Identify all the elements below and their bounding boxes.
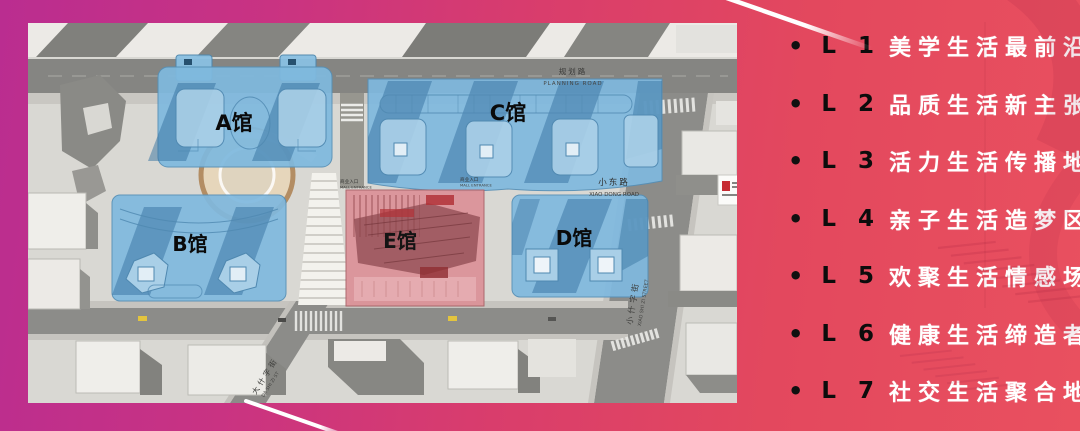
hall-c: C馆: [352, 79, 662, 191]
floor-desc: 美学生活最前沿: [889, 30, 1080, 62]
floor-row-l6: • L 6 健康生活缔造者: [758, 318, 1074, 350]
bullet-icon: •: [788, 207, 803, 231]
hall-b: B馆: [112, 195, 286, 301]
slash-line-bottom: [246, 401, 352, 431]
hall-d-label: D馆: [556, 226, 593, 250]
planning-road-label-cn: 规划路: [559, 66, 588, 76]
floor-desc: 亲子生活造梦区: [889, 203, 1080, 235]
floor-desc: 社交生活聚合地: [889, 375, 1080, 407]
hall-e-label: E馆: [383, 229, 417, 253]
floor-row-l7: • L 7 社交生活聚合地: [758, 375, 1074, 407]
bullet-icon: •: [788, 34, 803, 58]
floor-level: L 7: [821, 378, 881, 404]
floor-row-l5: • L 5 欢聚生活情感场: [758, 260, 1074, 292]
floor-level: L 5: [821, 263, 881, 289]
planning-road-label-en: PLANNING ROAD: [543, 81, 602, 87]
hall-a-label: A馆: [215, 111, 252, 135]
hall-a: A馆: [148, 55, 332, 167]
hall-e: E馆: [346, 190, 484, 306]
xiaodong-road-label-en: XIAO DONG ROAD: [589, 192, 639, 198]
mid-road: [340, 93, 364, 188]
entrance-banner: [718, 175, 737, 205]
north-buildings: [28, 23, 737, 57]
south-road: [28, 301, 628, 340]
bullet-icon: •: [788, 322, 803, 346]
xiaodong-road-label-cn: 小东路: [598, 177, 630, 188]
floor-desc: 欢聚生活情感场: [889, 260, 1080, 292]
floor-guide-list: • L 1 美学生活最前沿 • L 2 品质生活新主张 • L 3 活力生活传播…: [758, 30, 1074, 407]
mall-entrance-left-en: MALL ENTRANCE: [340, 185, 372, 190]
mall-entrance-right-en: MALL ENTRANCE: [460, 183, 492, 188]
bullet-icon: •: [788, 149, 803, 173]
floor-row-l1: • L 1 美学生活最前沿: [758, 30, 1074, 62]
site-plan-svg: A馆 C馆: [28, 23, 737, 403]
floor-desc: 健康生活缔造者: [889, 318, 1080, 350]
floor-desc: 品质生活新主张: [889, 88, 1080, 120]
hall-c-label: C馆: [490, 101, 526, 125]
floor-level: L 6: [821, 321, 881, 347]
floor-desc: 活力生活传播地: [889, 145, 1080, 177]
floor-level: L 2: [821, 91, 881, 117]
floor-level: L 1: [821, 33, 881, 59]
floor-row-l2: • L 2 品质生活新主张: [758, 88, 1074, 120]
floor-level: L 4: [821, 206, 881, 232]
hall-b-label: B馆: [172, 232, 207, 256]
site-plan-map: A馆 C馆: [28, 23, 737, 403]
poster-canvas: A馆 C馆: [0, 0, 1080, 431]
bullet-icon: •: [788, 92, 803, 116]
hall-d: D馆: [502, 195, 650, 297]
floor-row-l3: • L 3 活力生活传播地: [758, 145, 1074, 177]
bullet-icon: •: [788, 379, 803, 403]
floor-level: L 3: [821, 148, 881, 174]
bullet-icon: •: [788, 264, 803, 288]
floor-row-l4: • L 4 亲子生活造梦区: [758, 203, 1074, 235]
